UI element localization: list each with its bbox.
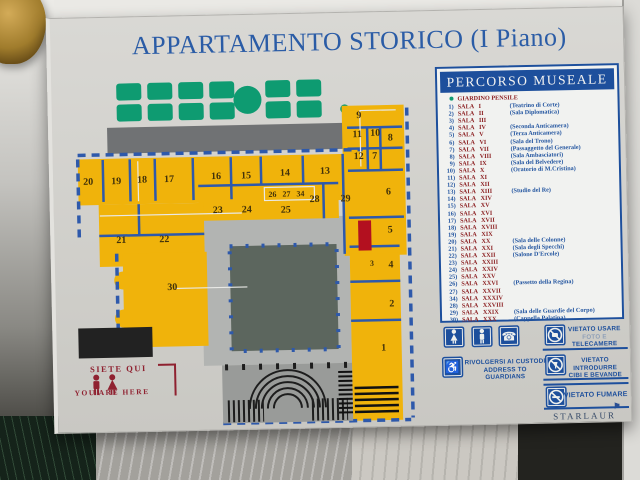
you-are-here-block: SIETE QUI YOU ARE HERE [72,360,185,414]
legend-sala-word: SALA [462,316,483,324]
legend-room-description: (Cappella Palatina) [514,313,619,322]
wheelchair-icon: ♿ [442,356,463,377]
marble-floor [96,428,366,480]
room-number-label: 11 [352,129,362,140]
you-are-here-arrow [158,363,177,395]
room-number-label: 34 [296,189,304,198]
you-are-here-en: YOU ARE HERE [74,387,149,398]
legend-room-list: 1) SALA I (Teatrino di Corte) 2) SALA II… [441,100,620,324]
room-number-label: 6 [386,186,391,197]
room-number-label: 3 [370,259,374,268]
room-number-label: 23 [213,205,223,216]
museum-map-sign: APPARTAMENTO STORICO (I Piano) [46,6,633,434]
room-number-label: 1 [381,343,386,354]
room-number-label: 19 [111,176,121,187]
room-number-label: 7 [372,151,377,162]
room-number-label: 16 [211,171,221,182]
room-number-label: 5 [388,224,393,235]
legend-room-number: 30) [445,316,462,323]
room-number-label: 8 [388,132,393,143]
brand-logo: STARLAUR [553,410,616,421]
no-smoking-label: VIETATO FUMARE [563,391,629,400]
room-number-label: 15 [241,170,251,181]
white-marble-step [352,422,527,480]
room-number-label: 24 [242,204,252,215]
legend-panel: PERCORSO MUSEALE GIARDINO PENSILE 1) SAL… [435,63,624,323]
room-number-label: 26 [268,190,276,199]
garden-bullet-icon [449,96,454,101]
room-number-label: 2 [389,298,394,309]
room-number-label: 17 [164,174,174,185]
legend-header: PERCORSO MUSEALE [440,68,614,93]
room-number-label: 9 [356,110,361,121]
room-number-label: 22 [159,234,169,245]
room-number-label: 14 [280,168,290,179]
room-number-label: 20 [83,177,93,188]
room-number-label: 10 [370,128,380,139]
rule-line [543,377,628,381]
room-number-label: 30 [167,282,177,293]
rule-line [543,382,628,386]
no-camera-label: VIETATO USARE FOTO E TELECAMERE [561,325,627,349]
you-are-here-it: SIETE QUI [90,363,147,374]
wc-women-icon [443,326,464,347]
room-number-label: 28 [309,194,319,205]
garden-label: GIARDINO PENSILE [457,94,517,102]
rule-line [543,347,628,351]
guardians-note: RIVOLGERSI AI CUSTODI ADDRESS TO GUARDIA… [463,358,547,382]
room-number-label: 18 [137,175,147,186]
room-number-label: 25 [281,205,291,216]
room-number-label: 27 [282,190,290,199]
room-number-label: 4 [388,259,393,270]
wc-men-icon [471,326,492,347]
room-number-label: 13 [320,166,330,177]
page-title: APPARTAMENTO STORICO (I Piano) [114,22,585,62]
legend-roman-numeral: XXX [483,315,514,323]
room-number-label: 29 [340,193,350,204]
room-number-label: 21 [116,235,126,246]
telephone-icon: ☎ [498,325,519,346]
room-number-label: 12 [354,151,364,162]
